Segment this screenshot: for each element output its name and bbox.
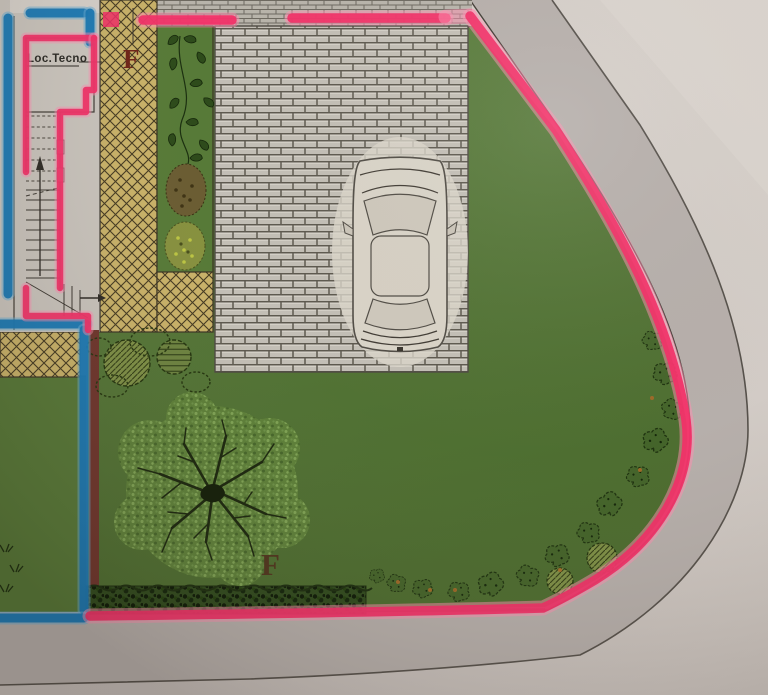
room-label: Loc.Tecno [27,53,87,65]
site-plan-photo: Loc.Tecno [0,0,768,695]
car [343,157,457,351]
shrub-brown [166,164,206,216]
planting-bed [157,26,215,272]
adjacent-lawn [0,376,86,612]
marker-f-bottom: F [261,547,280,582]
site-plan-drawing: Loc.Tecno [0,0,768,695]
marker-f-top: F [123,44,140,74]
